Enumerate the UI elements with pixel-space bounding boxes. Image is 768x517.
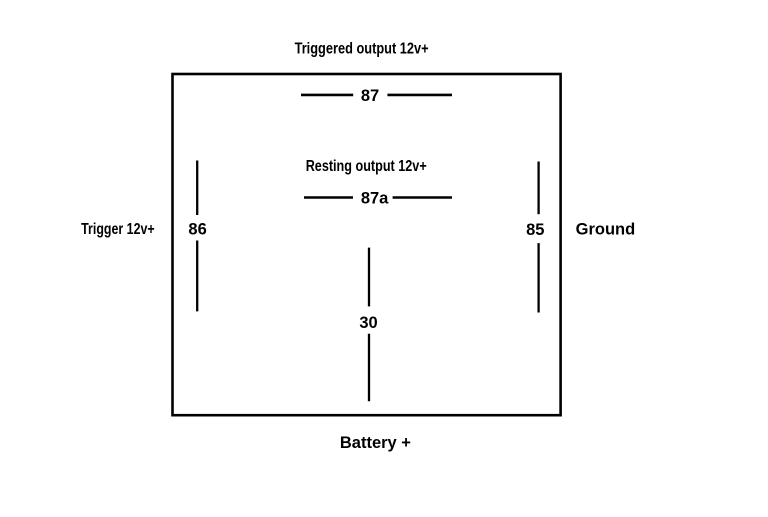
svg-text:Resting output 12v+: Resting output 12v+ xyxy=(306,158,427,175)
svg-text:Battery +: Battery + xyxy=(340,434,411,452)
svg-text:85: 85 xyxy=(526,221,544,239)
svg-text:87: 87 xyxy=(361,87,379,105)
svg-text:87a: 87a xyxy=(361,190,389,208)
svg-text:Trigger 12v+: Trigger 12v+ xyxy=(81,221,155,238)
svg-text:Ground: Ground xyxy=(576,221,636,239)
svg-text:86: 86 xyxy=(188,220,206,238)
svg-text:30: 30 xyxy=(359,314,377,332)
svg-text:Triggered output 12v+: Triggered output 12v+ xyxy=(295,41,429,58)
